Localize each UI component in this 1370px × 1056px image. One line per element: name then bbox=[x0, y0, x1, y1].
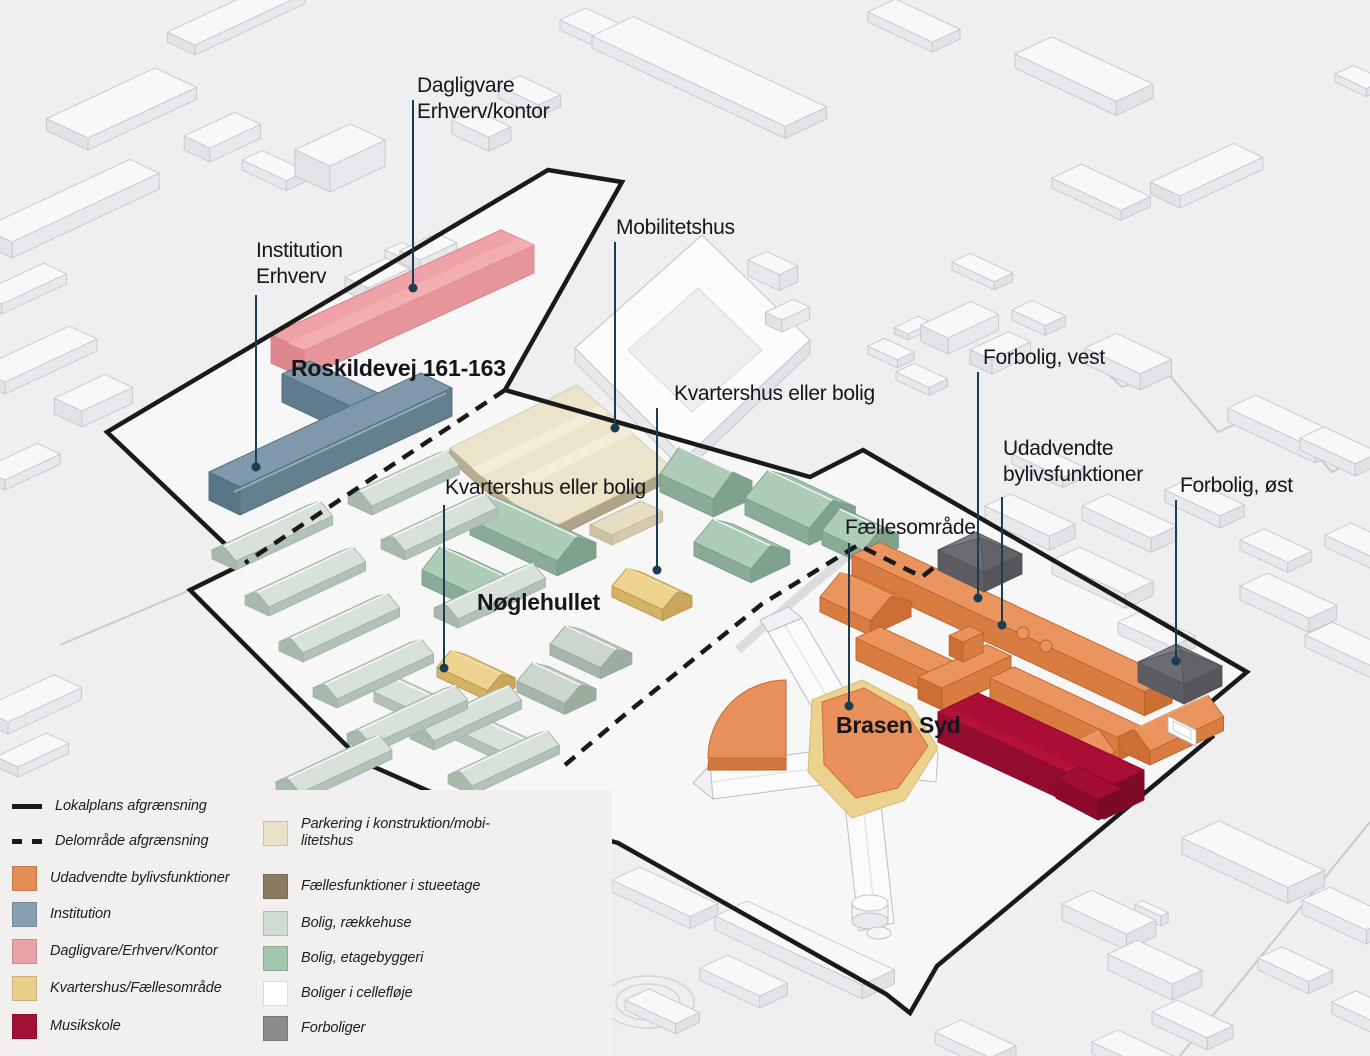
label-institution: Institution Erhverv bbox=[256, 238, 343, 290]
legend-swatch bbox=[12, 976, 37, 1001]
area-name-noeglehullet: Nøglehullet bbox=[477, 589, 600, 615]
legend-swatch bbox=[263, 946, 288, 971]
legend-panel: Lokalplans afgrænsning Delområde afgræns… bbox=[0, 790, 612, 1056]
legend-item-faellesfunktioner: Fællesfunktioner i stueetage bbox=[263, 874, 480, 899]
label-mobilitetshus: Mobilitetshus bbox=[616, 215, 735, 241]
label-forbolig-vest: Forbolig, vest bbox=[983, 345, 1105, 371]
callout-dot bbox=[845, 702, 854, 711]
legend-item-delomraade: Delområde afgrænsning bbox=[12, 833, 208, 850]
legend-swatch bbox=[12, 866, 37, 891]
legend-item-cellefloeje: Boliger i cellefløje bbox=[263, 981, 413, 1006]
label-kvartershus-syd: Kvartershus eller bolig bbox=[445, 475, 646, 501]
legend-item-institution: Institution bbox=[12, 902, 111, 927]
legend-swatch bbox=[12, 939, 37, 964]
callout-dot bbox=[409, 284, 418, 293]
callout-dot bbox=[1172, 657, 1181, 666]
legend-item-udadvendte: Udadvendte bylivsfunktioner bbox=[12, 866, 229, 891]
label-forbolig-oest: Forbolig, øst bbox=[1180, 473, 1293, 499]
callout-dot bbox=[252, 463, 261, 472]
legend-item-dagligvare: Dagligvare/Erhverv/Kontor bbox=[12, 939, 218, 964]
legend-swatch bbox=[263, 874, 288, 899]
area-name-roskildevej: Roskildevej 161-163 bbox=[291, 355, 506, 381]
legend-swatch bbox=[263, 1016, 288, 1041]
legend-item-raekkehuse: Bolig, rækkehuse bbox=[263, 911, 411, 936]
building-orange-bay bbox=[1040, 640, 1052, 652]
legend-item-parkering: Parkering i konstruktion/mobi- litetshus bbox=[263, 816, 490, 850]
callout-dot bbox=[998, 621, 1007, 630]
callout-dot bbox=[974, 594, 983, 603]
legend-item-forboliger: Forboliger bbox=[263, 1016, 365, 1041]
legend-swatch bbox=[12, 902, 37, 927]
building-orange-bay bbox=[1017, 627, 1029, 639]
legend-item-kvartershus: Kvartershus/Fællesområde bbox=[12, 976, 222, 1001]
legend-item-musikskole: Musikskole bbox=[12, 1014, 121, 1039]
legend-swatch bbox=[263, 911, 288, 936]
area-name-brasen-syd: Brasen Syd bbox=[836, 712, 961, 738]
callout-dot bbox=[653, 566, 662, 575]
label-kvartershus-nord: Kvartershus eller bolig bbox=[674, 381, 875, 407]
label-udadvendte: Udadvendte bylivsfunktioner bbox=[1003, 436, 1143, 488]
legend-solid-line-swatch bbox=[12, 804, 42, 809]
legend-item-lokalplan: Lokalplans afgrænsning bbox=[12, 798, 207, 815]
label-faellesomraade: Fællesområde bbox=[845, 515, 976, 541]
callout-dot bbox=[440, 664, 449, 673]
legend-swatch bbox=[263, 981, 288, 1006]
callout-dot bbox=[611, 424, 620, 433]
legend-dashed-line-swatch bbox=[12, 839, 42, 844]
legend-swatch bbox=[263, 821, 288, 846]
site-plan-page: { "map": { "areas": { "roskildevej": "Ro… bbox=[0, 0, 1370, 1056]
label-dagligvare: Dagligvare Erhverv/kontor bbox=[417, 73, 549, 125]
legend-item-etagebyggeri: Bolig, etagebyggeri bbox=[263, 946, 423, 971]
legend-swatch bbox=[12, 1014, 37, 1039]
